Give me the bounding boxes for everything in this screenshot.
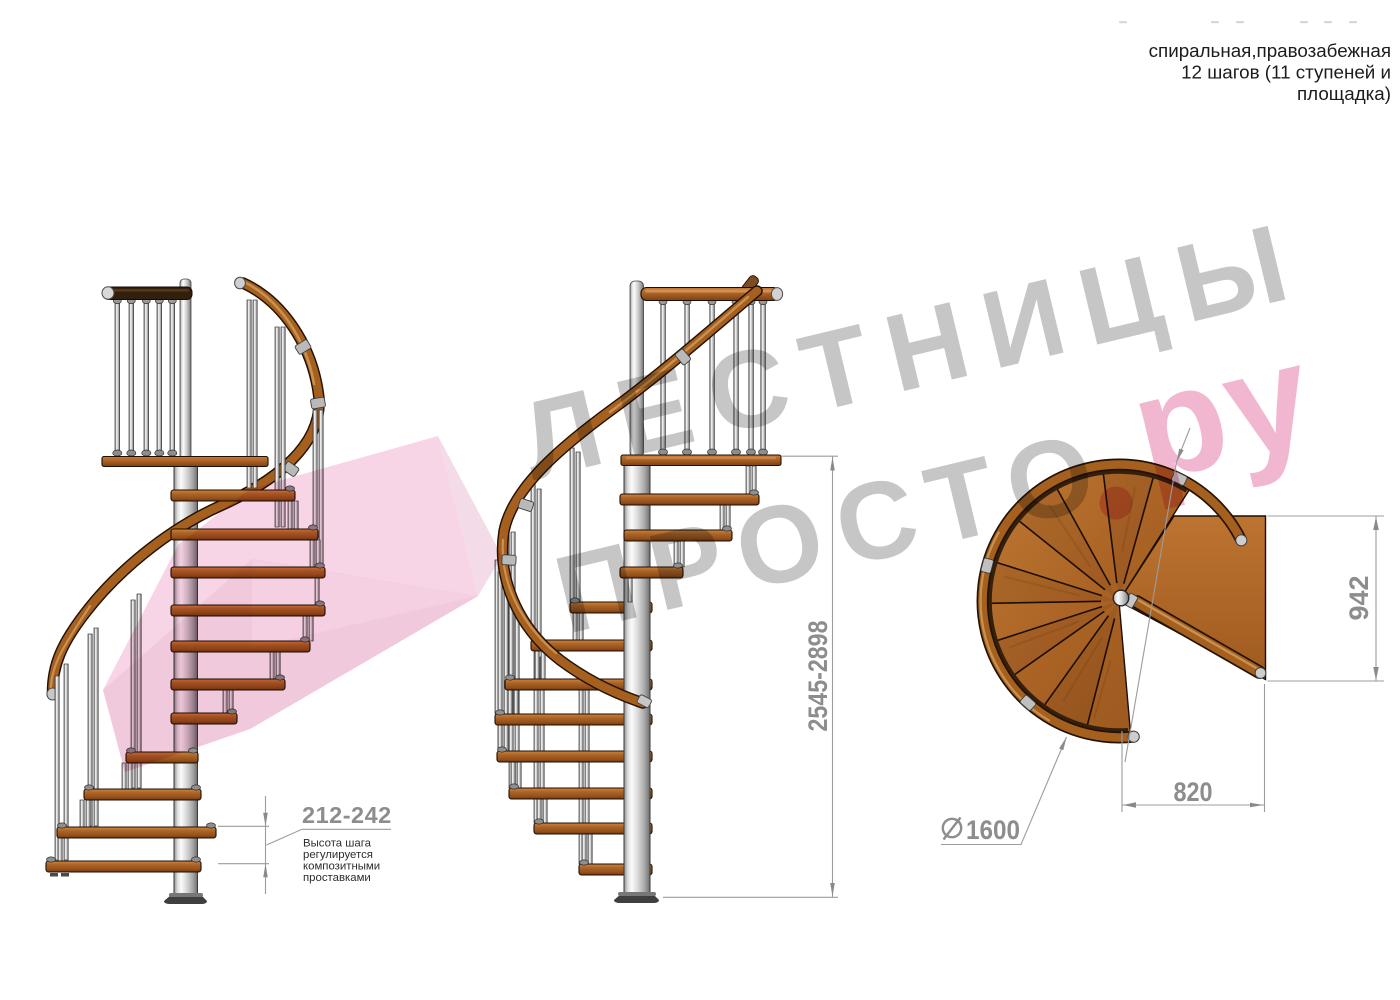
svg-text:площадка): площадка) [1297, 83, 1391, 104]
svg-text:942: 942 [1344, 576, 1374, 621]
svg-text:Высота шага: Высота шага [303, 838, 372, 850]
svg-text:212-242: 212-242 [302, 802, 392, 828]
svg-text:композитными: композитными [303, 861, 380, 873]
svg-text:1600: 1600 [966, 815, 1020, 845]
svg-text:спиральная,правозабежная: спиральная,правозабежная [1149, 40, 1391, 61]
svg-text:проставками: проставками [303, 872, 371, 884]
svg-text:12 шагов (11 ступеней и: 12 шагов (11 ступеней и [1181, 62, 1391, 83]
svg-text:регулируется: регулируется [303, 849, 373, 861]
svg-text:820: 820 [1174, 777, 1213, 807]
svg-text:2545-2898: 2545-2898 [803, 621, 833, 732]
